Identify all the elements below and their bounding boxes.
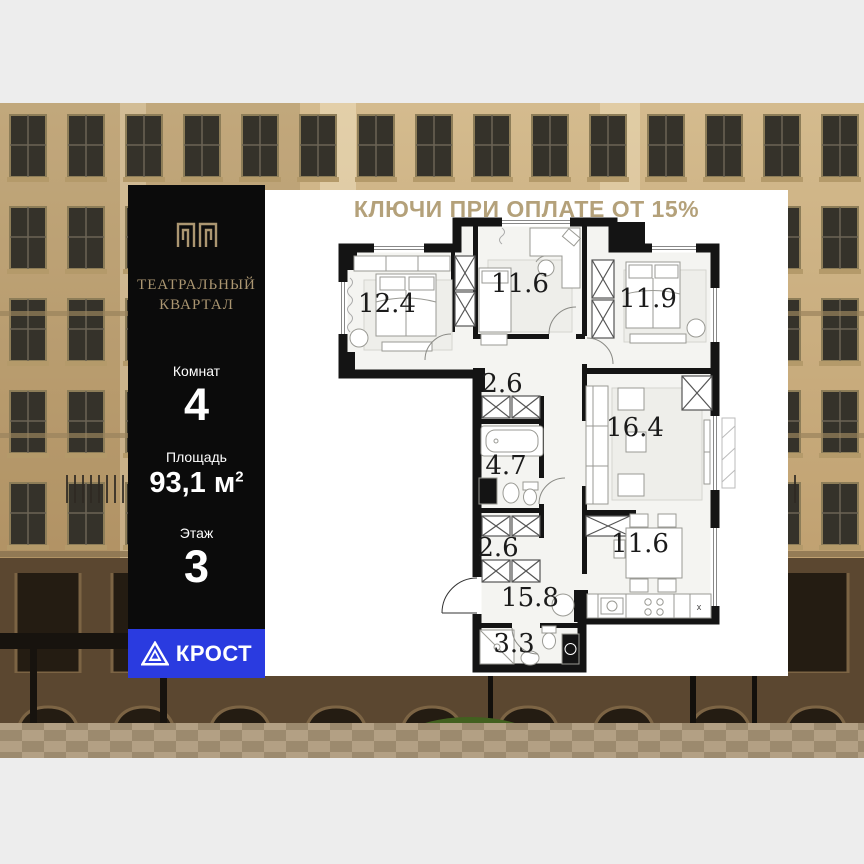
area-sup: 2 [235, 468, 243, 485]
label-office: 11.6 [491, 269, 549, 299]
label-corridor-bottom: 2.6 [477, 533, 518, 563]
brand-name-line1: ТЕАТРАЛЬНЫЙ [128, 277, 265, 294]
area-label: Площадь [128, 449, 265, 465]
listing-image: КЛЮЧИ ПРИ ОПЛАТЕ ОТ 15% [0, 0, 864, 864]
floorplan-card: КЛЮЧИ ПРИ ОПЛАТЕ ОТ 15% [265, 190, 788, 676]
pavement [0, 723, 864, 758]
label-kitchen: 11.6 [611, 529, 669, 559]
label-bedroom1: 12.4 [358, 289, 416, 319]
label-living: 16.4 [606, 413, 664, 443]
brand-emblem-icon [128, 221, 265, 254]
developer-bar: КРОСТ [128, 629, 265, 678]
label-bathroom: 4.7 [485, 451, 526, 481]
rooms-label: Комнат [128, 363, 265, 379]
entrance-door [442, 577, 482, 614]
floor-label: Этаж [128, 525, 265, 541]
label-wc: 3.3 [493, 629, 534, 659]
label-bedroom2: 11.9 [619, 284, 677, 314]
info-panel: ТЕАТРАЛЬНЫЙ КВАРТАЛ Комнат 4 Площадь 93,… [128, 185, 265, 629]
label-hall: 15.8 [501, 583, 559, 613]
krost-logo-icon [141, 641, 169, 666]
floorplan: 12.4 11.6 11.9 2.6 4.7 16.4 2.6 11.6 15.… [330, 216, 742, 674]
balcony-hatch [722, 418, 735, 488]
counter-mark: x [697, 602, 702, 612]
top-margin-strip [0, 0, 864, 103]
area-value: 93,1 м2 [128, 467, 265, 500]
floor-value: 3 [128, 541, 265, 593]
brand-name-line2: КВАРТАЛ [128, 297, 265, 314]
developer-name: КРОСТ [176, 641, 252, 667]
bottom-margin-strip [0, 758, 864, 864]
label-corridor-top: 2.6 [481, 369, 522, 399]
rooms-value: 4 [128, 379, 265, 431]
